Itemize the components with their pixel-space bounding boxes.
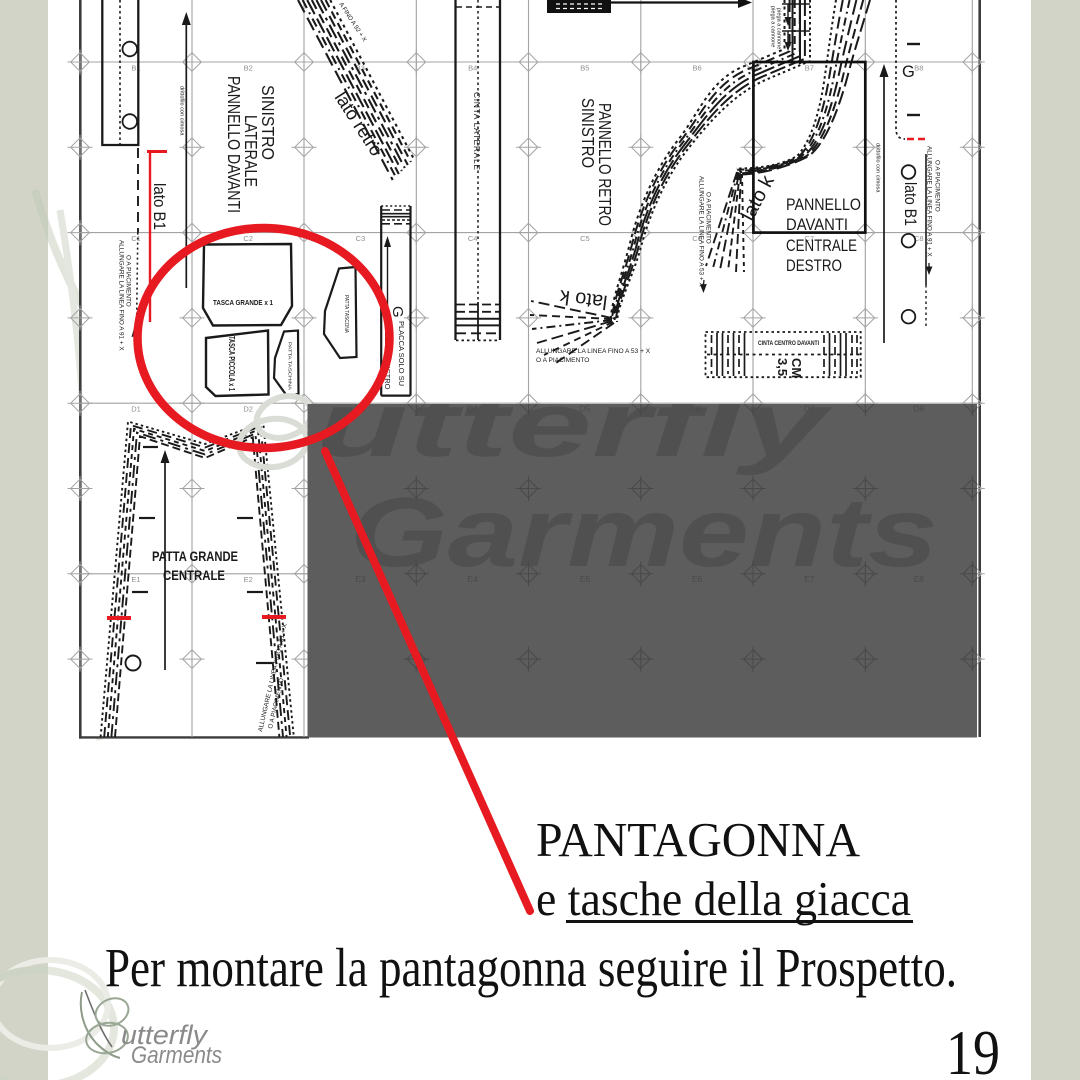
svg-text:CENTRALE: CENTRALE: [163, 568, 225, 583]
svg-text:LATERALE: LATERALE: [241, 115, 261, 187]
svg-text:B2: B2: [244, 64, 253, 73]
svg-text:O A PIACIMENTO: O A PIACIMENTO: [125, 255, 132, 307]
svg-text:PLACCA SOLO SU: PLACCA SOLO SU: [397, 321, 406, 386]
svg-text:piega a cannone: piega a cannone: [776, 8, 782, 49]
svg-text:ALLUNGARE LA LINEA FINO A 53: ALLUNGARE LA LINEA FINO A 53 + X: [536, 348, 651, 355]
svg-text:TASCA GRANDE x 1: TASCA GRANDE x 1: [213, 298, 273, 307]
svg-text:CINTA CENTRO DAVANTI: CINTA CENTRO DAVANTI: [758, 340, 819, 347]
svg-text:E2: E2: [244, 575, 253, 584]
svg-text:3,5: 3,5: [775, 358, 790, 376]
svg-text:DESTRO: DESTRO: [786, 257, 842, 275]
svg-text:C2: C2: [243, 234, 253, 243]
svg-text:D1: D1: [131, 404, 141, 413]
svg-text:E1: E1: [131, 575, 140, 584]
svg-text:E8: E8: [914, 574, 925, 584]
svg-text:PANTAGONNA: PANTAGONNA: [536, 812, 861, 867]
svg-text:O A PIACIMENTO: O A PIACIMENTO: [536, 357, 589, 364]
svg-text:CM: CM: [789, 358, 804, 378]
svg-text:D2: D2: [243, 404, 253, 413]
svg-text:O A PIACIMENTO: O A PIACIMENTO: [934, 160, 941, 212]
svg-text:D8: D8: [913, 403, 924, 413]
svg-text:E3: E3: [355, 574, 366, 584]
svg-text:C3: C3: [356, 234, 366, 243]
svg-text:D6: D6: [692, 403, 703, 413]
svg-text:E4: E4: [467, 574, 478, 584]
svg-text:lato B1: lato B1: [901, 182, 919, 226]
svg-text:B6: B6: [693, 64, 702, 73]
svg-text:E6: E6: [692, 574, 703, 584]
svg-text:C1: C1: [131, 234, 141, 243]
svg-text:ALLUNGARE LA LINEA FINO A 91: ALLUNGARE LA LINEA FINO A 91 + X: [926, 146, 933, 257]
svg-text:B7: B7: [805, 64, 814, 73]
svg-text:D4: D4: [467, 403, 478, 413]
svg-text:PANNELLO: PANNELLO: [786, 196, 861, 214]
svg-text:D5: D5: [579, 403, 590, 413]
svg-text:B4: B4: [468, 64, 477, 73]
svg-text:PATTA TASCONA: PATTA TASCONA: [343, 295, 349, 334]
svg-text:PATTA GRANDE: PATTA GRANDE: [152, 549, 238, 564]
svg-text:B8: B8: [914, 64, 923, 73]
svg-text:O A PIACIMENTO: O A PIACIMENTO: [705, 192, 712, 244]
svg-text:G: G: [902, 63, 915, 81]
svg-text:SINISTRO: SINISTRO: [578, 98, 598, 168]
svg-text:D7: D7: [804, 403, 815, 413]
svg-text:C4: C4: [468, 234, 478, 243]
svg-text:Per montare la pantagonna segu: Per montare la pantagonna seguire il Pro…: [105, 937, 957, 998]
svg-text:E5: E5: [580, 574, 591, 584]
svg-text:drittofilo con cimosa: drittofilo con cimosa: [875, 143, 881, 193]
svg-text:e tasche della giacca: e tasche della giacca: [536, 871, 911, 926]
svg-text:Garments: Garments: [350, 477, 938, 587]
svg-text:PATTA TASCHINA: PATTA TASCHINA: [288, 342, 293, 391]
svg-text:ALLUNGARE LA LINEA FINO A 91: ALLUNGARE LA LINEA FINO A 91 + X: [118, 240, 125, 351]
svg-text:lato B1: lato B1: [150, 183, 168, 230]
svg-text:B5: B5: [580, 64, 589, 73]
svg-text:19: 19: [946, 1017, 1000, 1080]
svg-text:piega a cannone: piega a cannone: [770, 6, 776, 47]
svg-text:SINISTRO: SINISTRO: [258, 85, 278, 160]
svg-text:TASCA PICCOLA x 1: TASCA PICCOLA x 1: [227, 336, 236, 391]
svg-text:E7: E7: [804, 574, 815, 584]
svg-text:CINTA LATERALE: CINTA LATERALE: [472, 92, 482, 170]
svg-text:drittofilo con cimosa: drittofilo con cimosa: [179, 86, 185, 136]
svg-text:PANNELLO DAVANTI: PANNELLO DAVANTI: [224, 76, 244, 213]
svg-text:ALLUNGARE LA LINEA FINO A 53: ALLUNGARE LA LINEA FINO A 53 + X: [698, 176, 705, 287]
svg-text:DAVANTI: DAVANTI: [786, 216, 848, 234]
svg-text:G: G: [389, 306, 406, 318]
svg-text:Garments: Garments: [131, 1042, 222, 1069]
svg-text:C5: C5: [580, 234, 590, 243]
svg-text:CENTRALE: CENTRALE: [786, 237, 857, 255]
